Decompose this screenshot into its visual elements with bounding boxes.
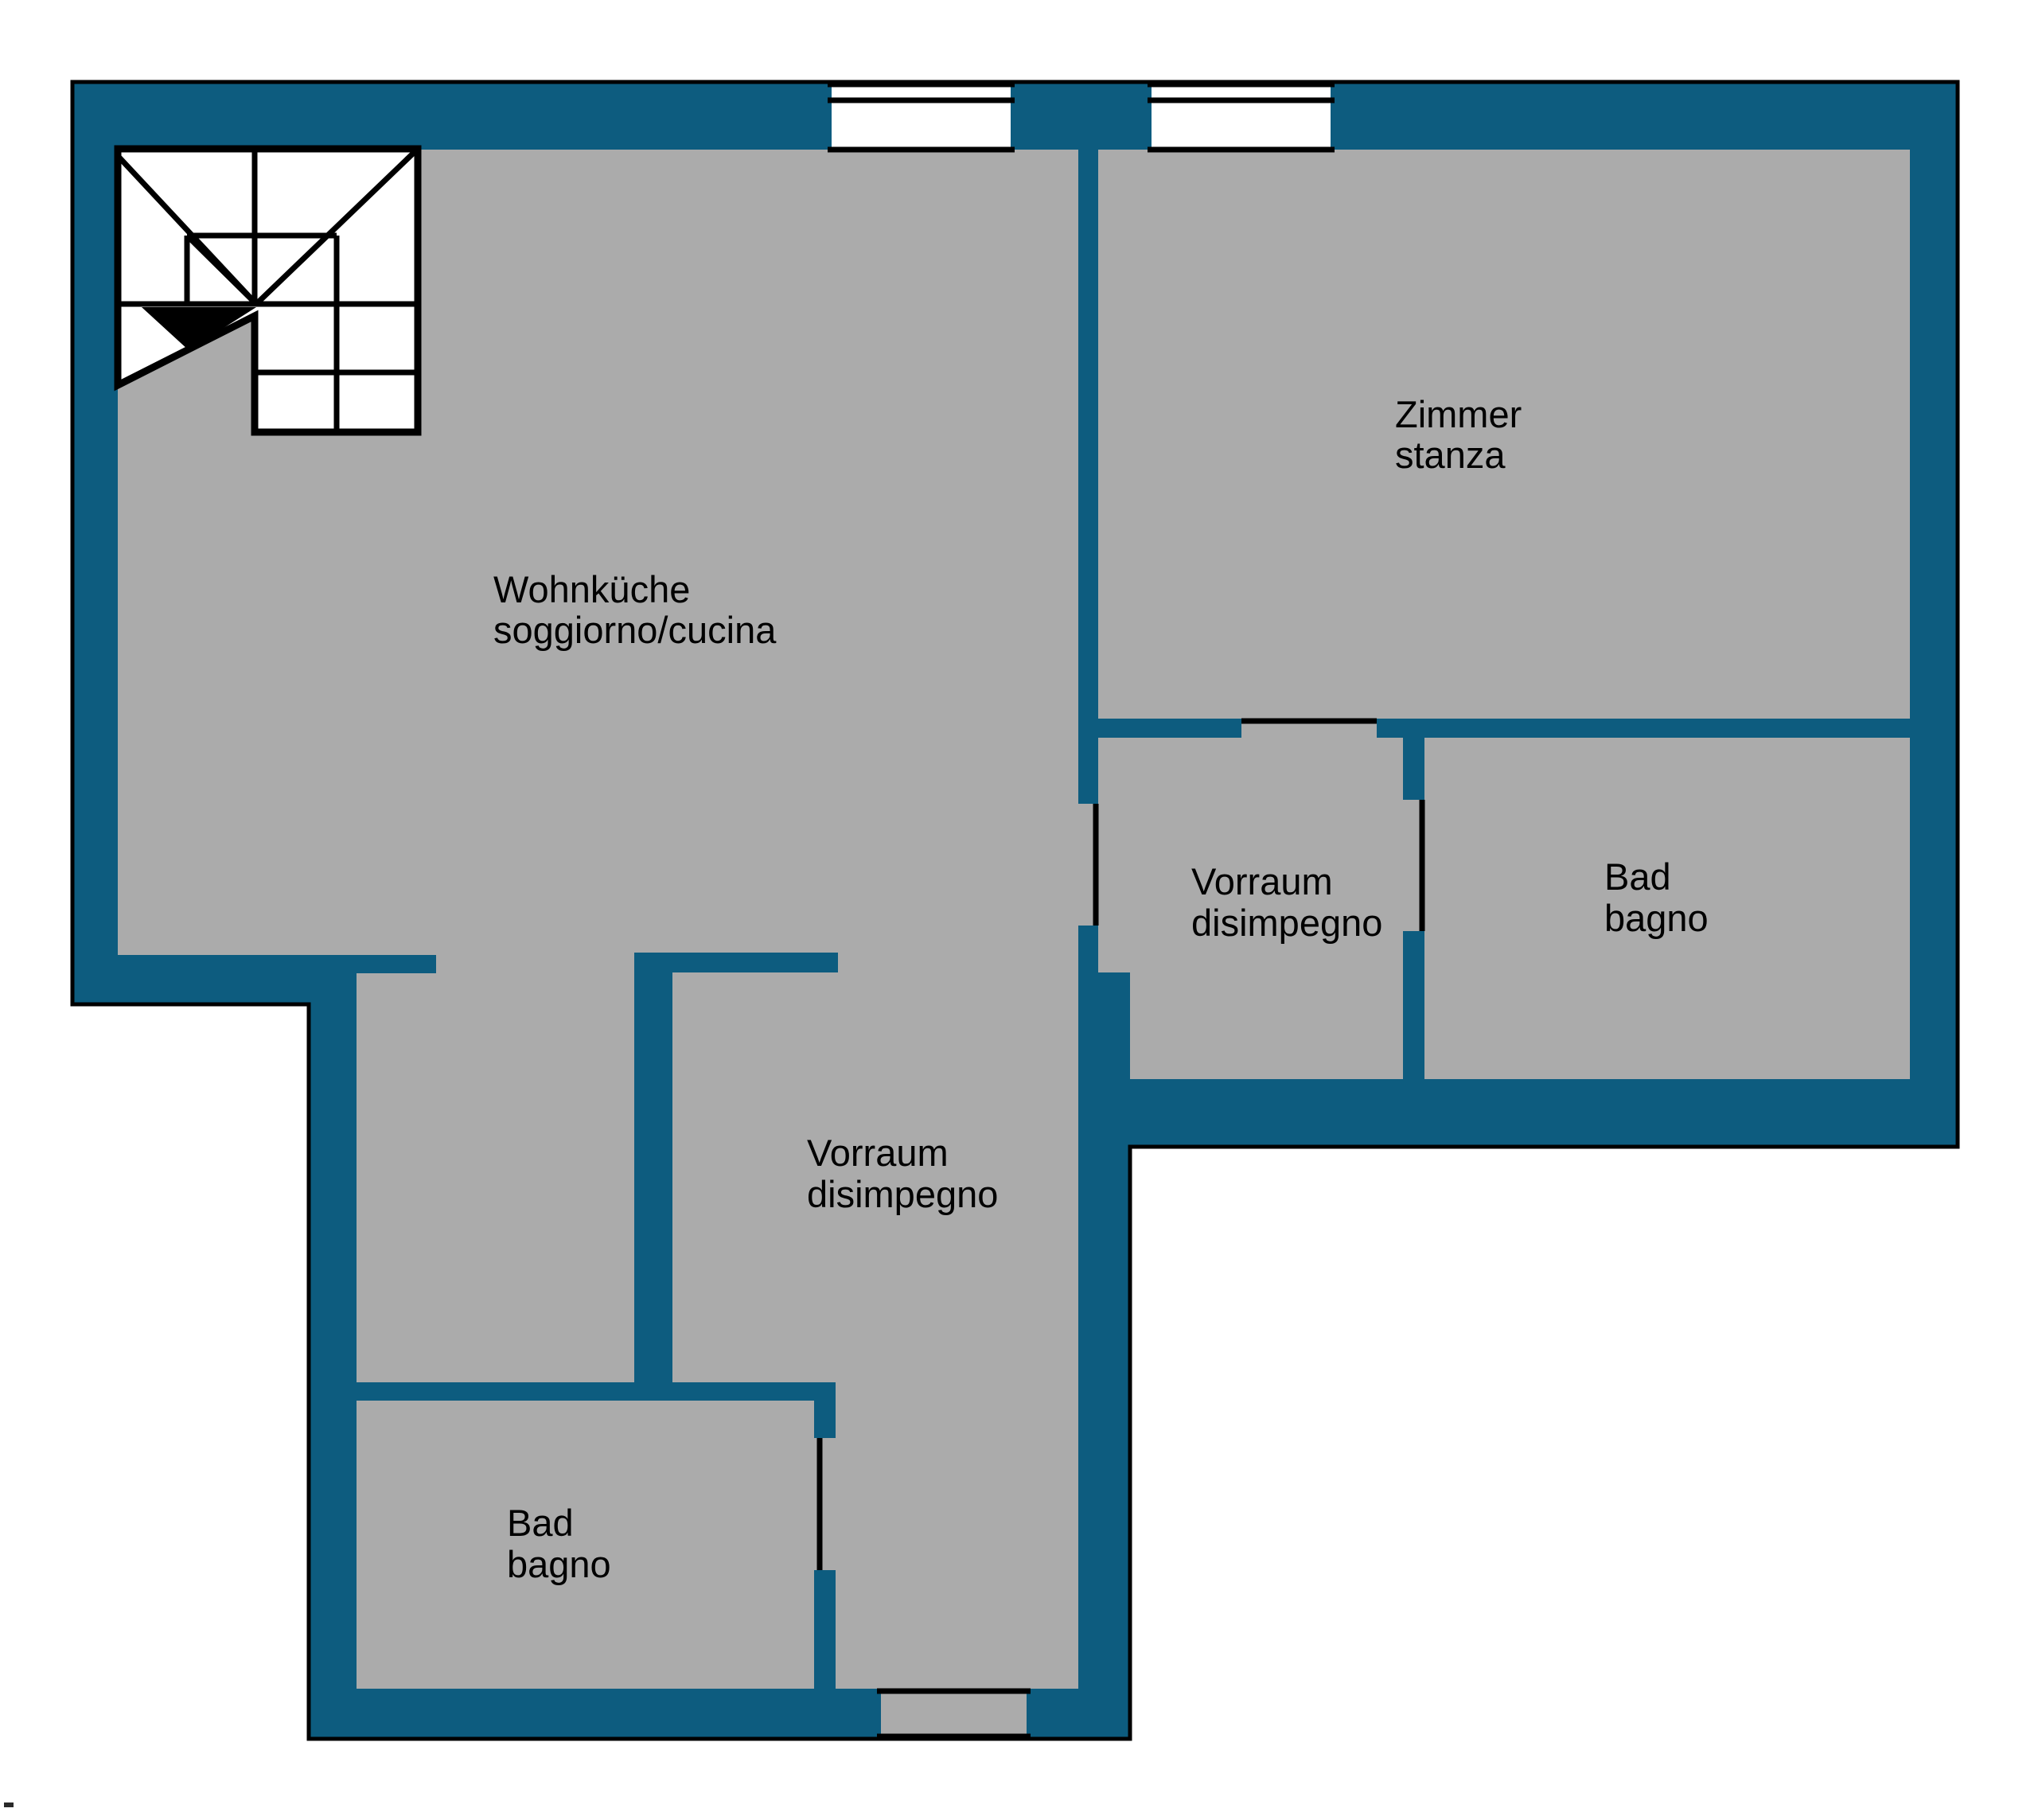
label-vorraum-right-it: disimpegno	[1191, 902, 1382, 944]
wall-strip-right	[634, 953, 672, 1401]
wall-bottom-section-right	[1078, 972, 1130, 1739]
wall-top-left-segment	[72, 82, 832, 150]
label-zimmer-de: Zimmer	[1395, 393, 1522, 435]
label-bad-bottom-de: Bad	[507, 1502, 574, 1544]
wall-bottom-left-segment	[309, 1689, 881, 1739]
wall-bad-bottom-jamb-top	[814, 1382, 836, 1438]
floor-strip-nook	[357, 972, 634, 1382]
label-bad-bottom-it: bagno	[507, 1543, 611, 1585]
corner-artifact-mark	[4, 1802, 14, 1807]
window-bottom	[881, 1689, 1027, 1739]
wall-top-right-segment	[1331, 82, 1958, 150]
label-vorraum-center-it: disimpegno	[807, 1173, 998, 1215]
wall-zimmer-vorraum-right	[1377, 719, 1910, 738]
wall-top-pier	[1011, 82, 1152, 150]
wall-exterior-left	[72, 82, 118, 1004]
wall-zimmer-vorraum-left	[1098, 719, 1241, 738]
wall-right-section-bottom	[1078, 1079, 1958, 1147]
window-top-1	[832, 82, 1011, 150]
wall-exterior-right	[1910, 82, 1958, 1147]
label-wohnkueche-it: soggiorno/cucina	[493, 609, 777, 651]
label-zimmer-it: stanza	[1395, 434, 1506, 476]
wall-stub-wohnkueche	[118, 955, 436, 973]
wall-strip-top	[634, 953, 838, 972]
wall-vorraum-bad-bottom	[1403, 931, 1424, 1079]
label-wohnkueche-de: Wohnküche	[493, 568, 690, 610]
wall-vorraum-bad-top	[1403, 738, 1424, 800]
floor-plan-page: Wohnküchesoggiorno/cucinaZimmerstanzaVor…	[0, 0, 2042, 1820]
window-top-2	[1152, 82, 1331, 150]
wall-center-partition	[1078, 150, 1098, 804]
wall-center-stub	[1078, 926, 1098, 972]
wall-bad-bottom-top	[309, 1382, 836, 1401]
label-bad-right-it: bagno	[1604, 897, 1709, 939]
wall-bad-bottom-jamb-low	[814, 1570, 836, 1689]
label-vorraum-center-de: Vorraum	[807, 1132, 949, 1174]
wall-bottom-section-left	[309, 955, 357, 1739]
label-vorraum-right-de: Vorraum	[1191, 860, 1333, 902]
label-bad-right-de: Bad	[1604, 855, 1671, 898]
floor-plan-svg: Wohnküchesoggiorno/cucinaZimmerstanzaVor…	[0, 0, 2042, 1820]
